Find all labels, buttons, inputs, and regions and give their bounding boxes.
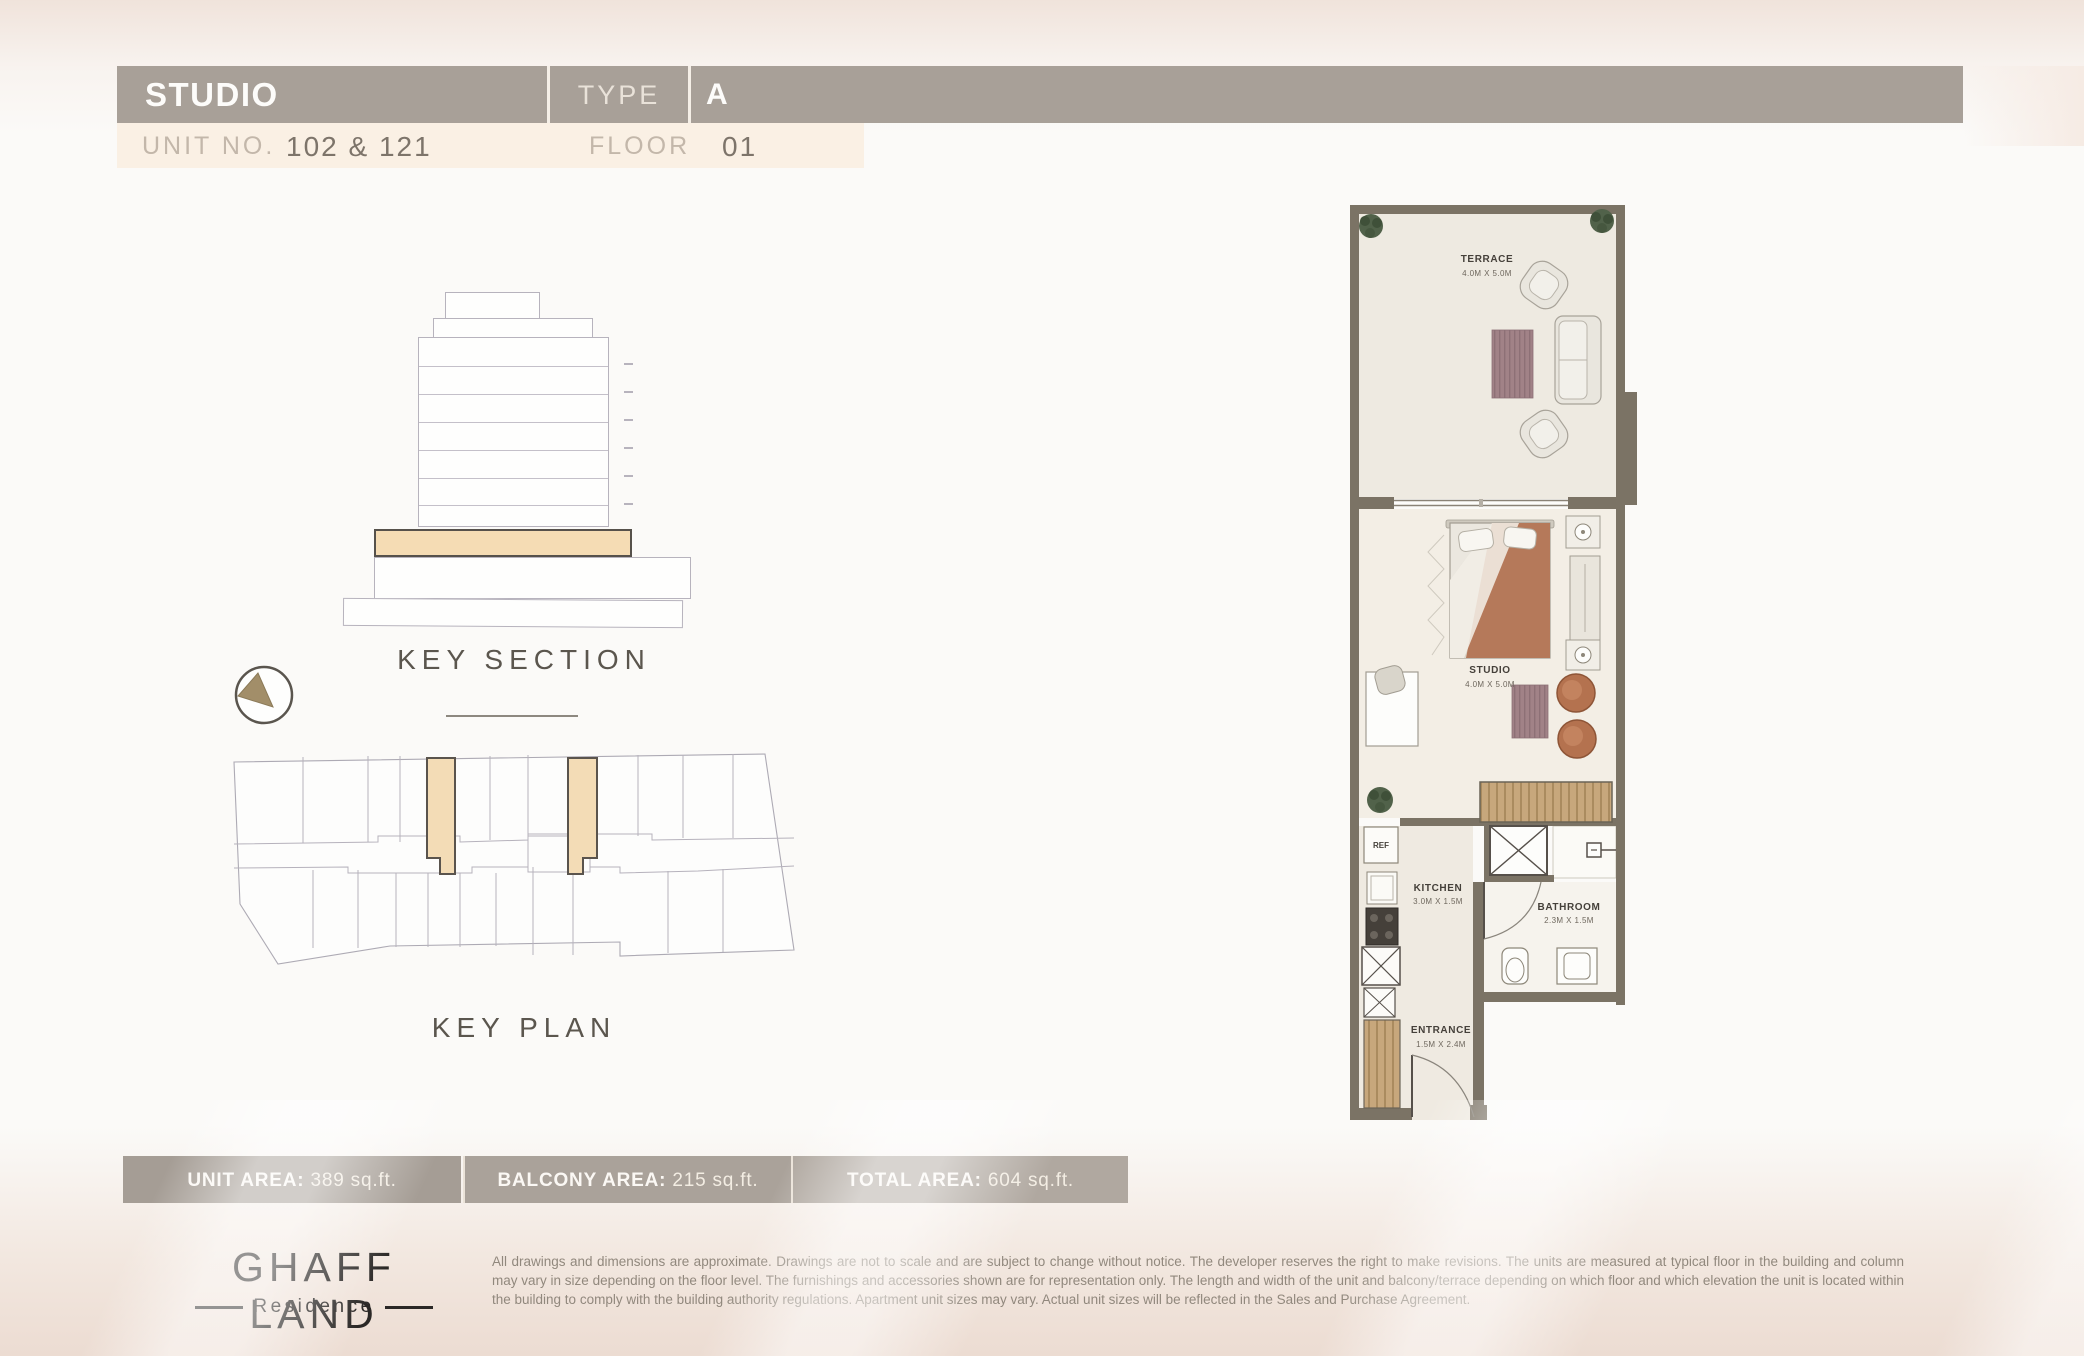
building-tower (418, 337, 609, 527)
page-edge-tint (1963, 66, 2084, 146)
dresser (1570, 556, 1600, 640)
terrace-sofa (1555, 316, 1601, 404)
kitchen-label: KITCHEN (1414, 883, 1463, 894)
studio-rug (1512, 685, 1548, 738)
lounge-chair-2 (1558, 720, 1596, 758)
entry-wardrobe-wood (1364, 1020, 1400, 1108)
terrace-window (1394, 499, 1568, 507)
terrace-rug (1492, 330, 1533, 398)
oven (1367, 872, 1397, 904)
closet-wood (1480, 782, 1612, 822)
nightstand-bottom (1566, 640, 1600, 670)
kitchen-dims: 3.0M X 1.5M (1413, 897, 1463, 906)
brochure-page: STUDIO TYPE A UNIT NO. 102 & 121 FLOOR 0… (0, 0, 2084, 1356)
unit-no-value: 102 & 121 (286, 123, 432, 168)
bathroom-dims: 2.3M X 1.5M (1544, 916, 1594, 925)
service-shaft (1490, 826, 1547, 875)
building-upper-step (433, 318, 593, 338)
header-divider (688, 66, 691, 123)
unit-info-row: UNIT NO. 102 & 121 FLOOR 01 (117, 123, 864, 168)
studio-label: STUDIO (1469, 665, 1510, 676)
type-value: A (706, 66, 728, 123)
plant-terrace-left (1359, 214, 1383, 238)
kitchen-unit (1364, 988, 1395, 1017)
disclaimer-text: All drawings and dimensions are approxim… (492, 1252, 1904, 1309)
brand-subtitle-text: Residence (253, 1296, 374, 1318)
key-section-title: KEY SECTION (394, 644, 654, 676)
highlighted-unit-102 (427, 758, 455, 874)
building-base (343, 598, 683, 628)
floor-label: FLOOR (589, 123, 690, 168)
utility-niche-floor (1553, 826, 1616, 878)
unit-area-value: 389 sq.ft. (304, 1170, 396, 1191)
total-area-segment: TOTAL AREA: 604 sq.ft. (793, 1156, 1128, 1203)
balcony-area-segment: BALCONY AREA: 215 sq.ft. (463, 1156, 793, 1203)
brand-subtitle: Residence (185, 1296, 443, 1318)
key-plan-title: KEY PLAN (394, 1012, 654, 1044)
unit-area-segment: UNIT AREA: 389 sq.ft. (123, 1156, 461, 1203)
desk (1366, 664, 1418, 746)
building-podium (374, 557, 691, 599)
brand-logo: GHAFF LAND (185, 1244, 443, 1338)
ref-label: REF (1373, 841, 1389, 850)
total-area-value: 604 sq.ft. (982, 1170, 1074, 1191)
highlighted-floor (374, 529, 632, 557)
balcony-area-value: 215 sq.ft. (666, 1170, 758, 1191)
unit-no-label: UNIT NO. (142, 123, 275, 168)
total-area-label: TOTAL AREA: (847, 1170, 982, 1191)
type-label: TYPE (550, 66, 688, 123)
brand-line-left (195, 1306, 243, 1309)
brand-line-right (385, 1306, 433, 1309)
studio-dims: 4.0M X 5.0M (1465, 680, 1515, 689)
stove (1366, 908, 1398, 945)
unit-area-label: UNIT AREA: (187, 1170, 304, 1191)
key-section-underline (446, 715, 578, 717)
bed (1446, 520, 1554, 658)
floor-value: 01 (722, 123, 757, 168)
unit-type-title: STUDIO (145, 66, 279, 123)
terrace-label: TERRACE (1461, 254, 1514, 265)
entrance-label: ENTRANCE (1411, 1025, 1471, 1036)
bathroom-sink (1557, 948, 1597, 984)
bathroom-label: BATHROOM (1538, 902, 1601, 913)
building-roof (445, 292, 540, 319)
washer (1362, 947, 1400, 985)
entrance-dims: 1.5M X 2.4M (1416, 1040, 1466, 1049)
header-bar: STUDIO TYPE A (117, 66, 1963, 123)
key-plan-outline (234, 754, 794, 964)
toilet (1502, 948, 1528, 984)
nightstand-top (1566, 516, 1600, 548)
key-plan-diagram (228, 740, 803, 975)
plant-studio (1367, 787, 1393, 813)
highlighted-unit-121 (568, 758, 597, 874)
key-section-diagram (343, 292, 703, 632)
balcony-area-label: BALCONY AREA: (498, 1170, 667, 1191)
terrace-dims: 4.0M X 5.0M (1462, 269, 1512, 278)
floor-plan: TERRACE 4.0M X 5.0M STUDIO 4.0M X 5.0M K… (1344, 200, 1644, 1130)
lounge-chair-1 (1557, 674, 1595, 712)
plant-terrace-right (1590, 209, 1614, 233)
compass-north-arrow (232, 663, 296, 727)
